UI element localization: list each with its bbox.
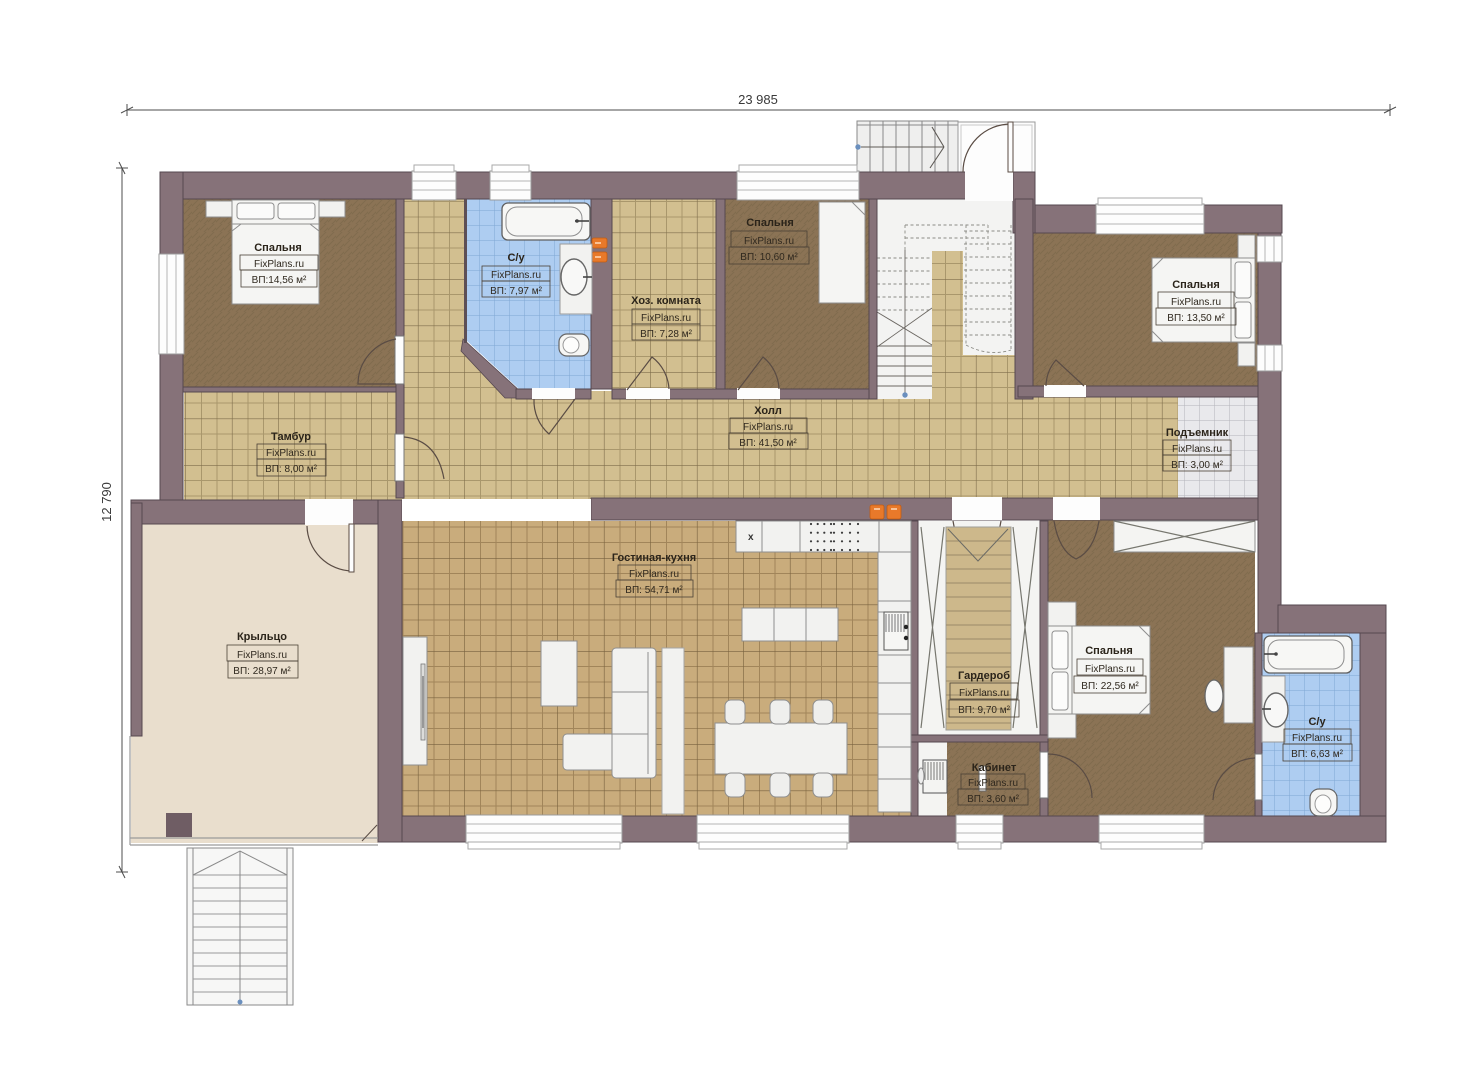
svg-text:Спальня: Спальня: [1172, 279, 1220, 291]
svg-text:FixPlans.ru: FixPlans.ru: [744, 236, 794, 247]
svg-text:Гардероб: Гардероб: [958, 670, 1010, 682]
svg-text:FixPlans.ru: FixPlans.ru: [641, 313, 691, 324]
svg-text:ВП: 54,71 м²: ВП: 54,71 м²: [625, 585, 683, 596]
svg-text:FixPlans.ru: FixPlans.ru: [1172, 444, 1222, 455]
svg-text:ВП: 3,00 м²: ВП: 3,00 м²: [1171, 460, 1224, 471]
svg-text:23 985: 23 985: [738, 92, 778, 107]
svg-text:ВП: 7,97 м²: ВП: 7,97 м²: [490, 286, 543, 297]
svg-text:FixPlans.ru: FixPlans.ru: [1085, 664, 1135, 675]
svg-text:ВП: 28,97 м²: ВП: 28,97 м²: [233, 666, 291, 677]
svg-text:С/у: С/у: [1308, 716, 1326, 728]
svg-text:ВП: 9,70 м²: ВП: 9,70 м²: [958, 705, 1011, 716]
svg-text:Крыльцо: Крыльцо: [237, 631, 287, 643]
svg-text:Тамбур: Тамбур: [271, 431, 311, 443]
svg-text:ВП: 7,28 м²: ВП: 7,28 м²: [640, 329, 693, 340]
svg-text:FixPlans.ru: FixPlans.ru: [254, 259, 304, 270]
svg-text:Подъемник: Подъемник: [1166, 427, 1229, 439]
svg-text:ВП:14,56 м²: ВП:14,56 м²: [252, 275, 307, 286]
svg-text:ВП: 13,50 м²: ВП: 13,50 м²: [1167, 313, 1225, 324]
svg-text:FixPlans.ru: FixPlans.ru: [968, 778, 1018, 789]
svg-text:Спальня: Спальня: [254, 242, 302, 254]
svg-text:FixPlans.ru: FixPlans.ru: [1171, 297, 1221, 308]
svg-text:ВП: 41,50 м²: ВП: 41,50 м²: [739, 438, 797, 449]
svg-text:FixPlans.ru: FixPlans.ru: [629, 569, 679, 580]
svg-text:ВП: 10,60 м²: ВП: 10,60 м²: [740, 252, 798, 263]
svg-text:Холл: Холл: [754, 405, 782, 417]
svg-text:Спальня: Спальня: [1085, 645, 1133, 657]
svg-text:ВП: 22,56 м²: ВП: 22,56 м²: [1081, 681, 1139, 692]
svg-text:ВП: 8,00 м²: ВП: 8,00 м²: [265, 464, 318, 475]
svg-text:Гостиная-кухня: Гостиная-кухня: [612, 552, 696, 564]
svg-text:С/у: С/у: [507, 252, 525, 264]
svg-text:FixPlans.ru: FixPlans.ru: [743, 422, 793, 433]
svg-text:FixPlans.ru: FixPlans.ru: [237, 650, 287, 661]
svg-text:FixPlans.ru: FixPlans.ru: [491, 270, 541, 281]
svg-text:FixPlans.ru: FixPlans.ru: [266, 448, 316, 459]
svg-text:Спальня: Спальня: [746, 217, 794, 229]
svg-text:ВП: 3,60 м²: ВП: 3,60 м²: [967, 794, 1020, 805]
svg-text:x: x: [748, 532, 754, 543]
svg-text:FixPlans.ru: FixPlans.ru: [959, 688, 1009, 699]
svg-text:Хоз. комната: Хоз. комната: [631, 295, 702, 307]
svg-text:FixPlans.ru: FixPlans.ru: [1292, 733, 1342, 744]
svg-text:Кабинет: Кабинет: [972, 762, 1017, 774]
svg-text:12 790: 12 790: [99, 482, 114, 522]
svg-text:ВП: 6,63 м²: ВП: 6,63 м²: [1291, 749, 1344, 760]
